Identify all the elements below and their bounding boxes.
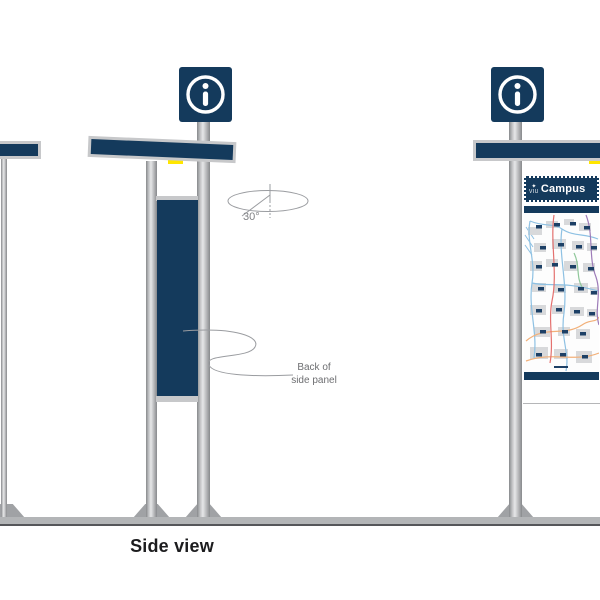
- side-view-diagram: ✦ VIU Campus: [0, 0, 600, 600]
- info-sign: [491, 67, 544, 122]
- sign-pole: [1, 158, 7, 518]
- view-caption: Side view: [97, 536, 247, 557]
- map-header-band: ✦ VIU Campus: [524, 176, 599, 202]
- back-of-side-panel-label: Back of side panel: [281, 361, 347, 387]
- map-title: Campus: [541, 183, 586, 195]
- ground-line: [0, 517, 600, 526]
- map-footer-band: [524, 372, 599, 380]
- panel-frame-bottom: [156, 396, 198, 402]
- viu-logo-text: VIU: [529, 190, 539, 195]
- campus-map-art: [524, 213, 599, 372]
- rotation-annotation: [225, 180, 315, 222]
- info-sign: [179, 67, 232, 122]
- blade-sign: [473, 140, 600, 161]
- panel-support-pole: [146, 161, 157, 518]
- rotation-angle-label: 30°: [243, 211, 260, 223]
- info-icon: [179, 67, 232, 122]
- blade-sign: [0, 141, 41, 159]
- viu-logo: ✦ VIU: [529, 184, 539, 195]
- sign-pole: [197, 121, 210, 518]
- sign-pole: [509, 121, 522, 518]
- info-icon: [491, 67, 544, 122]
- campus-map-panel: ✦ VIU Campus: [523, 170, 600, 404]
- map-subheader-band: [524, 206, 599, 213]
- blade-sign-rotated: [88, 136, 237, 163]
